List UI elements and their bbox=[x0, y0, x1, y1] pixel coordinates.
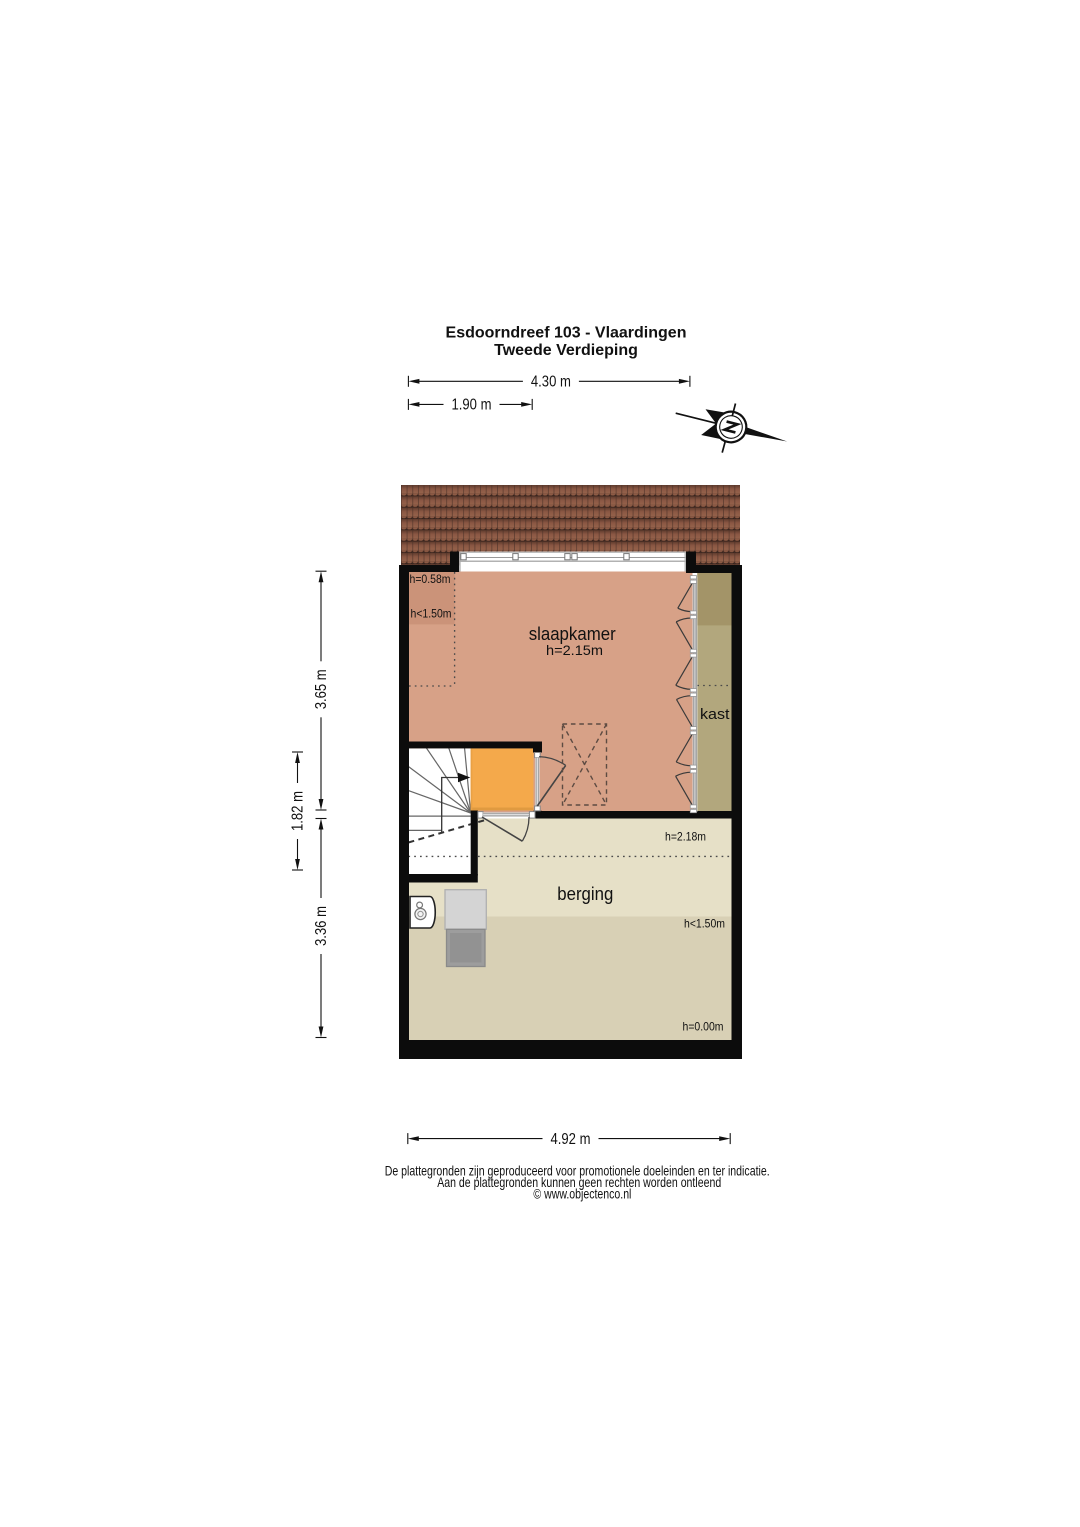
svg-text:© www.objectenco.nl: © www.objectenco.nl bbox=[533, 1186, 631, 1202]
svg-text:slaapkamer: slaapkamer bbox=[529, 623, 616, 644]
svg-text:kast: kast bbox=[700, 706, 730, 723]
svg-text:h=2.15m: h=2.15m bbox=[546, 642, 603, 658]
svg-text:h=0.00m: h=0.00m bbox=[683, 1020, 724, 1034]
svg-text:h=0.58m: h=0.58m bbox=[410, 572, 451, 586]
svg-text:1.82 m: 1.82 m bbox=[290, 791, 307, 831]
svg-text:3.65 m: 3.65 m bbox=[313, 669, 330, 709]
svg-text:4.92 m: 4.92 m bbox=[551, 1131, 591, 1148]
svg-text:h<1.50m: h<1.50m bbox=[684, 917, 725, 931]
svg-text:h<1.50m: h<1.50m bbox=[411, 607, 452, 621]
svg-text:berging: berging bbox=[557, 883, 613, 904]
svg-text:Tweede Verdieping: Tweede Verdieping bbox=[494, 342, 638, 359]
svg-text:3.36 m: 3.36 m bbox=[313, 906, 330, 946]
svg-text:4.30 m: 4.30 m bbox=[531, 374, 571, 391]
svg-text:h=2.18m: h=2.18m bbox=[665, 830, 706, 844]
svg-text:1.90 m: 1.90 m bbox=[452, 397, 492, 414]
svg-text:Esdoorndreef 103 - Vlaardingen: Esdoorndreef 103 - Vlaardingen bbox=[446, 325, 687, 342]
